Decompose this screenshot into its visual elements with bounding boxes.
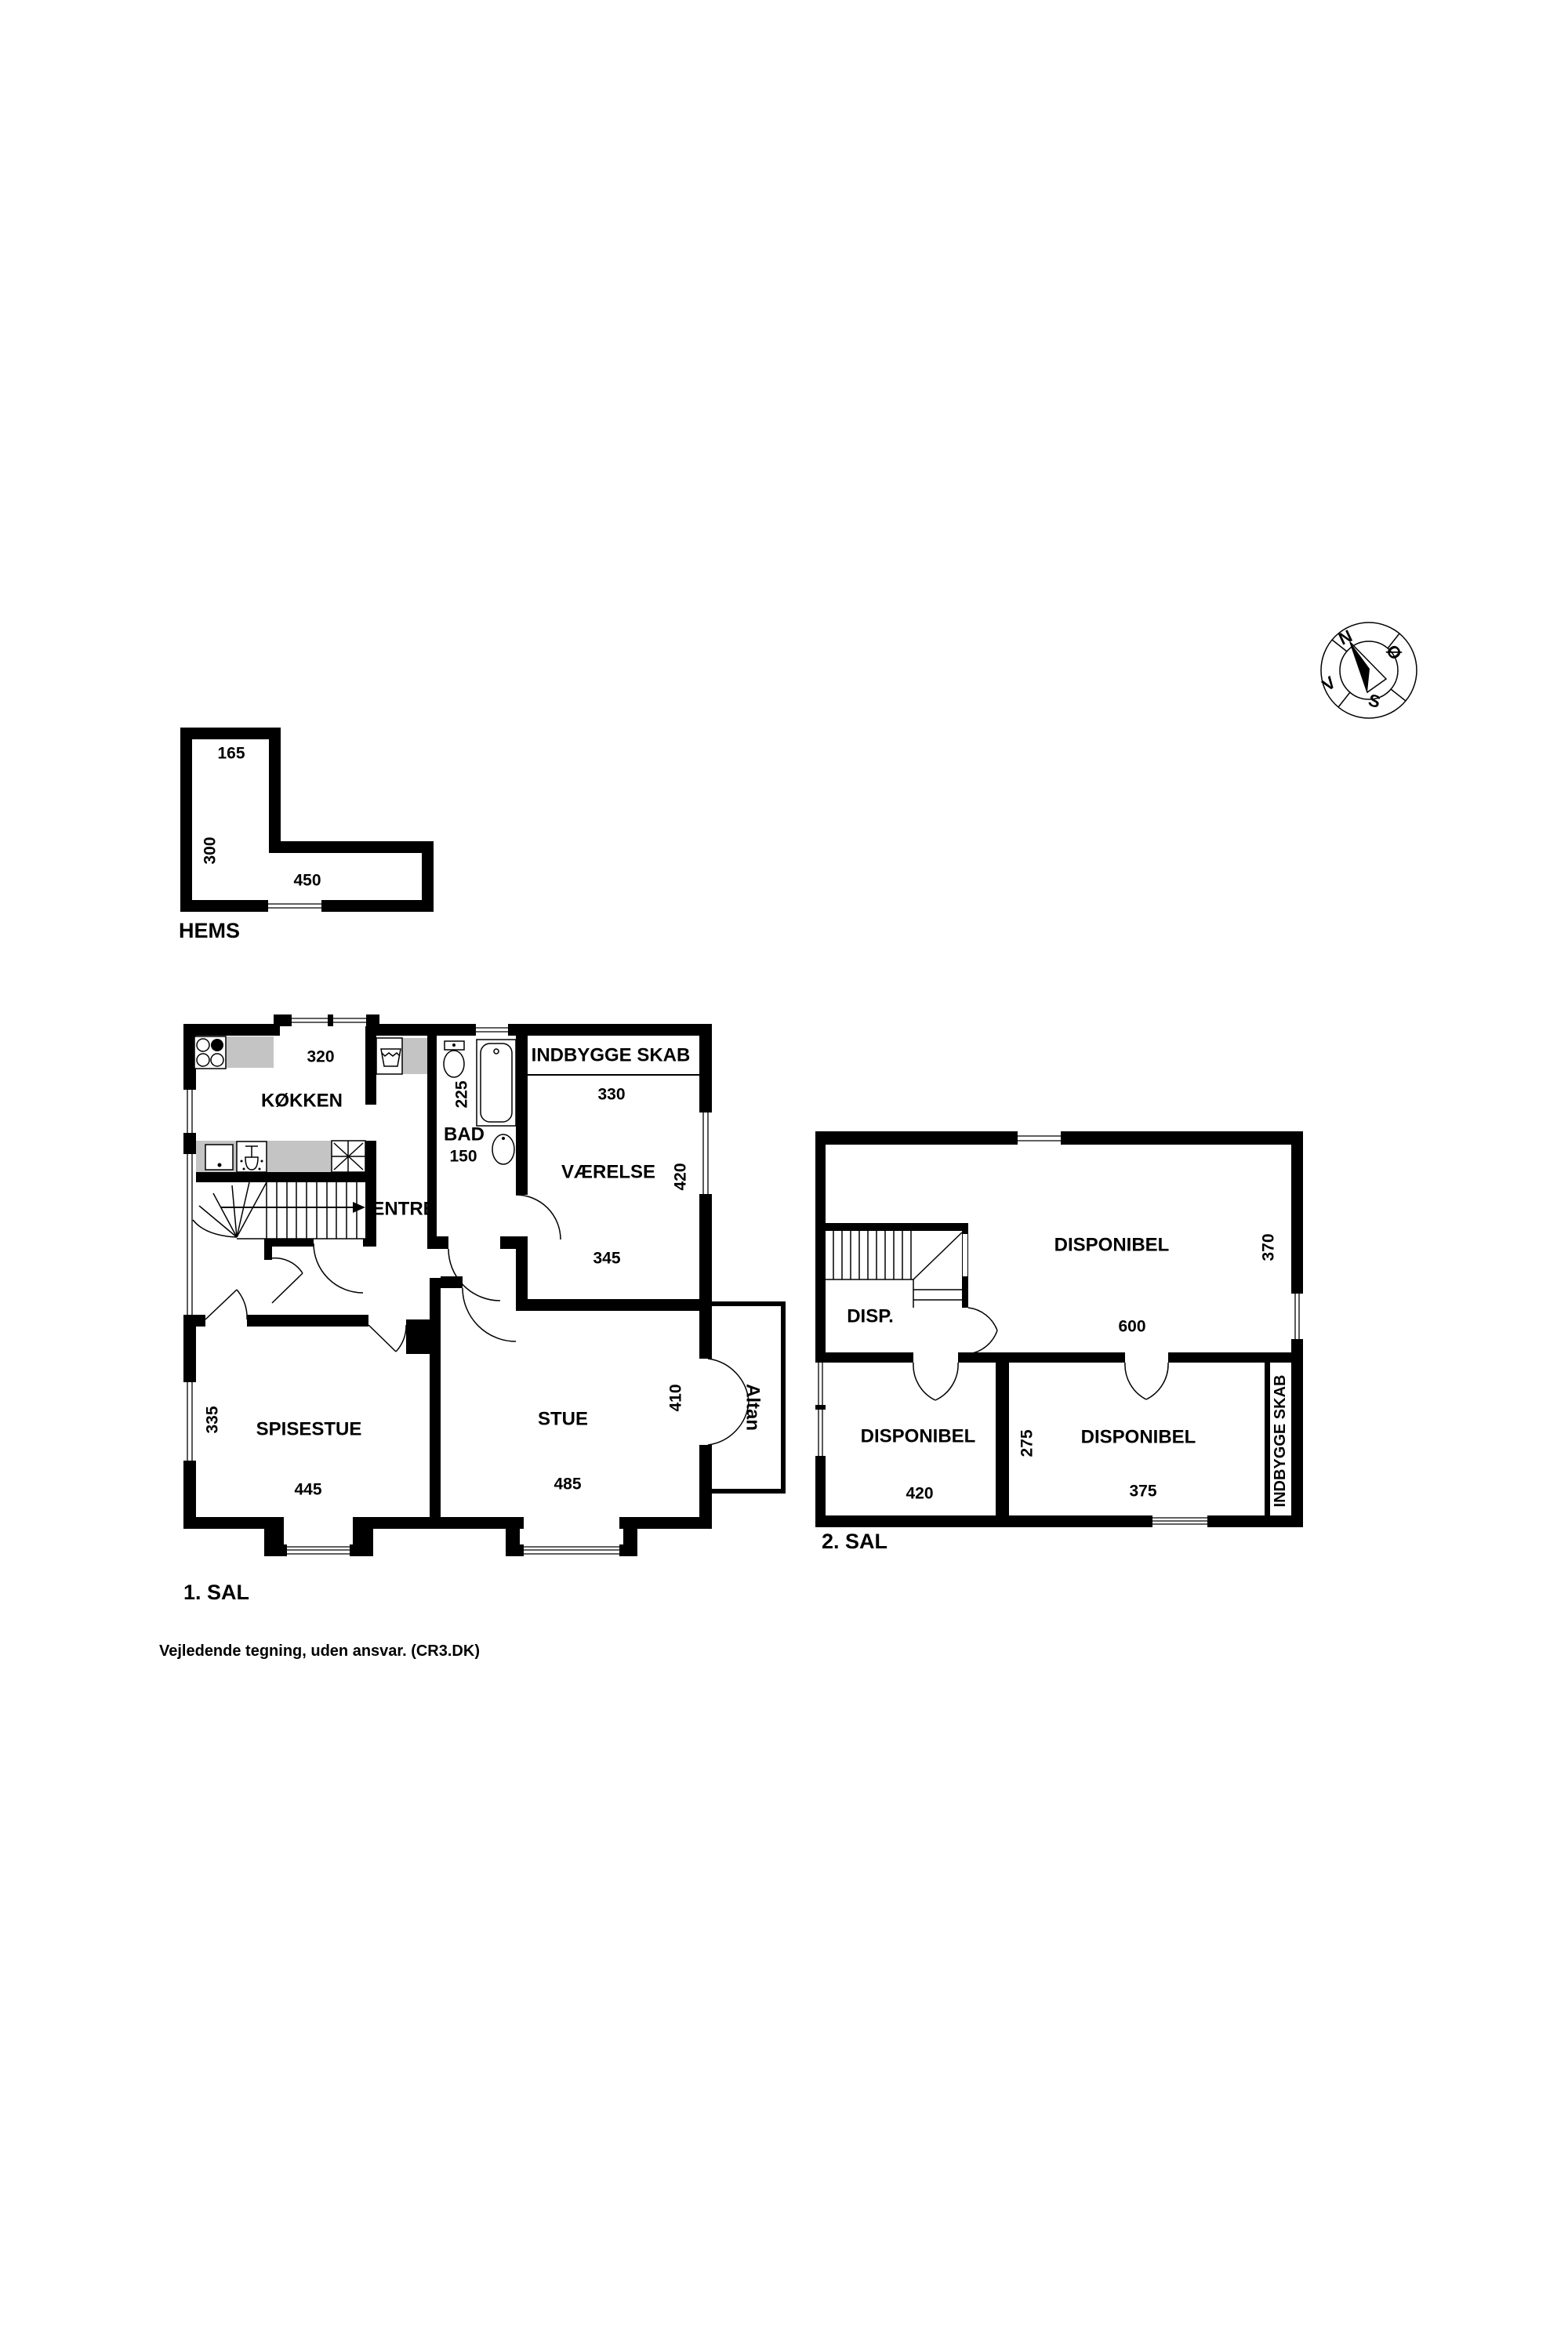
stue-dim-right: 410 [667,1384,685,1411]
second-top-window [1018,1131,1061,1145]
bad-dim-width: 150 [449,1148,477,1166]
first-floor-openings [284,1236,712,1529]
disclaimer-note: Vejledende tegning, uden ansvar. (CR3.DK… [159,1642,480,1660]
compass-south-label: S [1367,690,1383,712]
disponibel-left-dim-bottom: 420 [906,1485,933,1503]
kokken-dim-top: 320 [307,1048,334,1066]
second-left-window-1 [815,1363,826,1405]
entre-label: ENTRÉ [372,1198,435,1220]
indbygge-skab-2-label: INDBYGGE SKAB [1272,1375,1289,1508]
bad-top-window [476,1024,508,1036]
vaerelse-right-window [699,1112,712,1194]
vaerelse-dim-right: 420 [672,1163,690,1190]
bad-label: BAD [444,1124,485,1145]
left-wall-window-1 [183,1090,196,1133]
second-floor-windows [815,1131,1303,1527]
stue-bay-window [524,1544,619,1556]
altan-label: Altan [742,1384,764,1431]
washbasin-icon [492,1134,514,1164]
toilet-icon [444,1041,464,1077]
compass-needle-icon [1350,642,1386,692]
second-left-window-2 [815,1410,826,1456]
vaerelse-dim-top: 330 [597,1086,625,1104]
bathtub-icon [477,1040,516,1126]
second-floor-plan: DISPONIBEL 370 600 DISP. DISPONIBEL 420 … [815,1131,1303,1553]
disponibel-right-label: DISPONIBEL [1081,1427,1196,1448]
stue-label: STUE [538,1409,588,1430]
spisestue-label: SPISESTUE [256,1419,362,1440]
first-floor-name: 1. SAL [183,1581,249,1604]
second-right-window [1291,1294,1303,1339]
kitchen-bump-window-1 [292,1014,328,1026]
vaerelse-label: VÆRELSE [561,1162,655,1183]
laundry-sink-icon [376,1038,402,1074]
disponibel-right-dim-left: 275 [1018,1429,1036,1457]
disp-label: DISP. [847,1306,894,1327]
compass-rose: N Ø S V [1319,622,1417,718]
spisestue-dim-bottom: 445 [294,1481,321,1499]
staircase-first-floor [193,1182,365,1239]
second-floor-walls [815,1131,1303,1527]
second-bottom-window [1152,1515,1207,1527]
indbygge-skab-label: INDBYGGE SKAB [532,1045,691,1066]
kitchen-basin-icon [237,1142,267,1172]
hems-dim-bottom: 450 [293,872,321,890]
vaerelse-dim-bottom: 345 [593,1250,620,1268]
kitchen-sink-icon [205,1145,233,1170]
compass-east-label: Ø [1382,641,1406,663]
first-floor-plan: KØKKEN 320 ENTRÉ BAD 225 150 INDBYGGE SK… [183,1014,783,1604]
floorplan-sheet: N Ø S V 165 300 450 HEMS [0,0,1568,2352]
left-wall-window-2 [183,1154,196,1315]
hems-floor-name: HEMS [179,919,240,942]
kokken-label: KØKKEN [261,1091,343,1112]
spisestue-bay-window [287,1544,350,1556]
stue-dim-bottom: 485 [554,1475,581,1494]
second-floor-name: 2. SAL [822,1530,887,1553]
stove-icon [194,1036,226,1069]
staircase-second-floor [826,1231,962,1308]
disponibel-top-label: DISPONIBEL [1054,1235,1170,1256]
left-wall-window-3 [183,1382,196,1461]
extractor-fan-icon [332,1141,365,1172]
hems-dim-top: 165 [217,745,245,763]
spisestue-dim-left: 335 [204,1406,222,1433]
hems-plan: 165 300 450 HEMS [179,728,434,942]
hems-window [268,900,321,912]
disponibel-top-dim-right: 370 [1260,1233,1278,1261]
disponibel-right-dim-bottom: 375 [1129,1483,1156,1501]
hems-dim-left: 300 [201,837,220,864]
stair-railing [963,1234,967,1276]
bad-dim-height: 225 [453,1080,471,1108]
kitchen-bump-window-2 [333,1014,366,1026]
disponibel-left-label: DISPONIBEL [861,1426,976,1447]
disponibel-top-dim-bottom: 600 [1118,1318,1145,1336]
